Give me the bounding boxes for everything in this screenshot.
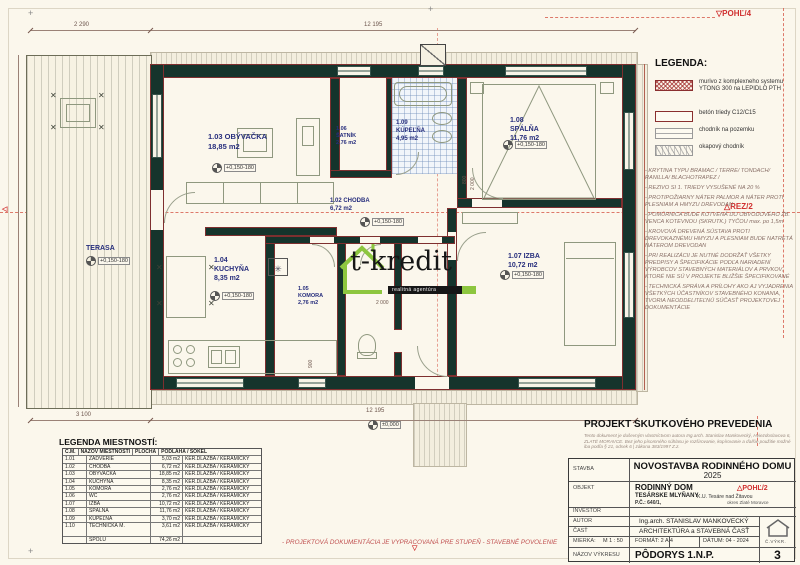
pohl4-axis [545, 17, 715, 18]
tb-nazov-label: NÁZOV VÝKRESU [573, 552, 620, 558]
total-value: 74,26 m2 [151, 537, 183, 543]
tb-cast: ARCHITEKTÚRA a STAVEBNÁ ČASŤ [639, 528, 749, 535]
note-item: - PROTIPOŽIARNY NÁTER PALMOR A NÁTER PRO… [645, 195, 795, 209]
table-row: 1.03 OBÝVAČKA 18,85 m2 KER.DLAŽBA / KERA… [63, 471, 261, 478]
room-table-body: 1.01 ZÁDVERIE 5,03 m2 KER.DLAŽBA / KERAM… [63, 456, 261, 529]
hob-burner [186, 345, 195, 354]
cell-plocha: 5,03 m2 [151, 456, 183, 462]
wall-partition [394, 352, 402, 376]
elevation-mark: +0,150-180 [212, 163, 256, 173]
tv-cabinet-inner [302, 126, 314, 146]
cell-plocha: 8,35 m2 [151, 479, 183, 485]
tb-mierka-label: MIERKA: [573, 538, 596, 544]
sofa-divider [260, 182, 261, 204]
level-icon [360, 217, 370, 227]
note-item: - POMÚRNICA BUDE KOTVENÁ DO OBVODOVÉHO Ž… [645, 212, 795, 226]
tb-loc3: P.Č.: 640/1, [635, 500, 661, 506]
dim-line-left [18, 55, 19, 407]
bathtub-inner [399, 86, 447, 102]
legend-item-label: betón triedy C12/C15 [699, 110, 795, 117]
elevation-mark: +0,150-180 [210, 291, 254, 301]
tb-line [569, 516, 796, 517]
note-item: - REZIVO SI 1. TRIEDY VYSUŠENÉ NA 20 % [645, 185, 795, 192]
table-row: 1.08 SPÁLŇA 11,76 m2 KER.DLAŽBA / KERAMI… [63, 508, 261, 515]
cell-cm: 1.04 [63, 479, 87, 485]
table-row: 1.02 CHODBA 6,72 m2 KER.DLAŽBA / KERAMIC… [63, 464, 261, 471]
level-icon [368, 420, 378, 430]
header-cell: Č.M. [63, 449, 79, 455]
level-icon [210, 291, 220, 301]
tb-stavba-label: STAVBA [573, 466, 594, 472]
cell-podlaha: KER.DLAŽBA / KERAMICKÝ [183, 501, 261, 507]
entry-door-opening [415, 377, 449, 389]
dim-value: 12 195 [366, 408, 384, 414]
table-row: 1.09 KÚPEĽŇA 3,70 m2 KER.DLAŽBA / KERAMI… [63, 516, 261, 523]
registration-cross-icon: + [28, 8, 33, 18]
legend-item: murivo z komplexneho systemu YTONG 300 n… [655, 79, 797, 105]
window [152, 94, 162, 158]
room-label-kuchyna: 1.04KUCHYŇA8,35 m2 [214, 256, 249, 283]
logo-tagline: realitná agentúra [392, 287, 436, 293]
header-cell: PODLAHA / SOKEL [159, 449, 209, 455]
hob-burner [173, 358, 182, 367]
cell-cm: 1.06 [63, 493, 87, 499]
tb-number: 3 [759, 548, 796, 562]
dim-value: 900 [308, 360, 314, 368]
dim-value: 2 000 [470, 177, 476, 190]
registration-cross-icon: + [428, 4, 433, 14]
elevation-mark-terasa: +0,150-180 [86, 256, 130, 266]
dim-value: 800 [462, 176, 468, 184]
hob-burner [173, 345, 182, 354]
cell-plocha: 2,76 m2 [151, 493, 183, 499]
cell-nazov: SPÁLŇA [87, 508, 151, 514]
dim-line-top [30, 30, 636, 31]
tb-line [699, 536, 700, 547]
tb-cast-label: ČASŤ [573, 528, 588, 534]
dim-value: 3 100 [76, 412, 91, 418]
logo-tagline-bar: realitná agentúra [388, 286, 462, 294]
legend-swatch [655, 128, 693, 139]
pohl4-section-mark: ▽POHĽ/4 [716, 9, 751, 18]
cell-nazov: ZÁDVERIE [87, 456, 151, 462]
elevation-mark: +0,150-180 [360, 217, 404, 227]
window [505, 66, 587, 76]
flue-box: ✳ [268, 258, 288, 276]
room-label-satnik: 1.06ŠATNÍK2,76 m2 [336, 126, 356, 147]
wall-partition [457, 78, 467, 206]
tb-line [569, 526, 759, 527]
cell-plocha: 18,85 m2 [151, 471, 183, 477]
chair-icon: ✕ [50, 92, 57, 100]
flue-star-icon: ✳ [274, 264, 282, 274]
room-label-izba: 1.07 IZBA10,72 m2 [508, 252, 540, 270]
hob-burner [186, 358, 195, 367]
window [176, 378, 244, 388]
cell-podlaha: KER.DLAŽBA / KERAMICKÝ [183, 471, 261, 477]
registration-cross-icon: + [28, 546, 33, 556]
level-icon [500, 270, 510, 280]
table-row: 1.06 WC 2,76 m2 KER.DLAŽBA / KERAMICKÝ [63, 493, 261, 500]
tb-mierka: M 1 : 50 [603, 538, 623, 544]
note-item: - TECHNICKÁ SPRÁVA A PRÍLOHY AKO AJ VYJA… [645, 284, 795, 312]
cell-plocha: 10,72 m2 [151, 501, 183, 507]
wall-partition [386, 78, 392, 174]
cell-podlaha: KER.DLAŽBA / KERAMICKÝ [183, 486, 261, 492]
tb-format: FORMÁT: 2 A 4 [635, 538, 673, 544]
cell-plocha: 6,72 m2 [151, 464, 183, 470]
washbasin [432, 112, 452, 125]
tb-loc1: TESÁRSKE MLYŇANY [635, 493, 698, 499]
section-left-icon: ◁ [2, 205, 7, 213]
tkredit-logo: t-kredit realitná agentúra [336, 238, 476, 302]
tb-line [569, 507, 796, 508]
tb-cvykr-label: Č.VÝKR. [765, 539, 786, 544]
tb-house-icon [765, 518, 791, 538]
legend-swatch [655, 80, 693, 91]
cell-nazov: IZBA [87, 501, 151, 507]
cell-podlaha: KER.DLAŽBA / KERAMICKÝ [183, 479, 261, 485]
cell-cm: 1.08 [63, 508, 87, 514]
cell-podlaha: KER.DLAŽBA / KERAMICKÝ [183, 456, 261, 462]
washbasin [432, 130, 452, 143]
cell-cm: 1.03 [63, 471, 87, 477]
table-row: 1.04 KUCHYŇA 8,35 m2 KER.DLAŽBA / KERAMI… [63, 479, 261, 486]
titleblock-copyright: Tento dokument je duševným vlastníctvom … [584, 433, 792, 450]
legend-items: murivo z komplexneho systemu YTONG 300 n… [655, 79, 797, 156]
zero-level-mark: ±0,000 [368, 420, 401, 430]
footer-note: - PROJEKTOVÁ DOKUMENTÁCIA JE VYPRACOVANÁ… [282, 539, 557, 546]
chair-icon: ✕ [156, 264, 163, 272]
cell-cm: 1.02 [63, 464, 87, 470]
tb-autor-label: AUTOR [573, 518, 592, 524]
legend-item-label: chodník na pozemku [699, 127, 795, 134]
tb-objekt: RODINNÝ DOM [635, 483, 693, 492]
cell-podlaha: KER.DLAŽBA / KERAMICKÝ [183, 464, 261, 470]
dim-value: 2 290 [74, 22, 89, 28]
cell-nazov: WC [87, 493, 151, 499]
cell-plocha: 11,76 m2 [151, 508, 183, 514]
window [624, 252, 634, 318]
table-row: 1.01 ZÁDVERIE 5,03 m2 KER.DLAŽBA / KERAM… [63, 456, 261, 463]
cell-cm: 1.09 [63, 516, 87, 522]
elevation-mark: +0,150-180 [503, 140, 547, 150]
level-icon [212, 163, 222, 173]
elevation-mark: +0,150-180 [500, 270, 544, 280]
tb-line [569, 481, 796, 482]
room-label-chodba: 1.02 CHODBA6,72 m2 [330, 198, 370, 214]
legend-swatch [655, 145, 693, 156]
entry-path [413, 403, 467, 467]
tb-pohl2-mark: △POHĽ/2 [737, 484, 768, 492]
room-table-title: LEGENDA MIESTNOSTÍ: [59, 437, 157, 448]
legend-title: LEGENDA: [655, 58, 797, 69]
sink-bowl [225, 350, 236, 364]
tb-line [569, 536, 759, 537]
titleblock: STAVBA NOVOSTAVBA RODINNÉHO DOMU 2025 OB… [568, 458, 795, 562]
wall-partition [330, 170, 392, 178]
window [624, 112, 634, 170]
window [518, 378, 596, 388]
dim-line-bottom [30, 420, 636, 421]
chair-icon: ✕ [98, 92, 105, 100]
room-label-terasa: TERASA [86, 244, 115, 253]
tb-investor-label: INVESTOR [573, 508, 601, 514]
note-item: - PRI REALIZÁCII JE NUTNÉ DODRŽAŤ VŠETKY… [645, 253, 795, 281]
sofa-divider [223, 182, 224, 204]
chair-icon: ✕ [98, 124, 105, 132]
wall-partition [205, 227, 337, 236]
room-table-header: Č.M.NÁZOV MIESTNOSTIPLOCHAPODLAHA / SOKE… [63, 449, 261, 456]
notes-list: - KRYTINA TYPU BRAMAC / TERRE/ TONDACH/ … [645, 168, 795, 312]
legend-item-label: murivo z komplexneho systemu YTONG 300 n… [699, 79, 795, 105]
drawing-sheet: + + + ▽POHĽ/4 △REZ/2 ◁ ▽ ✕ ✕ ✕ ✕ TERASA … [0, 0, 800, 565]
window [298, 378, 326, 388]
tb-loc4: okres Zlaté Moravce [727, 500, 769, 505]
level-icon [503, 140, 513, 150]
legend-swatch [655, 111, 693, 122]
wardrobe [462, 212, 518, 224]
cell-nazov: KUCHYŇA [87, 479, 151, 485]
chair-icon: ✕ [208, 300, 215, 308]
door-opening [310, 237, 334, 243]
cell-nazov: CHODBA [87, 464, 151, 470]
cell-plocha: 3,70 m2 [151, 516, 183, 522]
table-total-row: SPOLU 74,26 m2 [63, 537, 261, 543]
note-item: - KRYTINA TYPU BRAMAC / TERRE/ TONDACH/ … [645, 168, 795, 182]
toilet-tank [357, 352, 377, 359]
bed-pillow-line [566, 258, 614, 259]
nightstand [600, 82, 614, 94]
legend-item: okapový chodník [655, 144, 797, 156]
header-cell: PLOCHA [133, 449, 159, 455]
cell-podlaha: KER.DLAŽBA / KERAMICKÝ [183, 516, 261, 522]
logo-wordmark: t-kredit [350, 246, 452, 277]
room-table: Č.M.NÁZOV MIESTNOSTIPLOCHAPODLAHA / SOKE… [62, 448, 262, 544]
tb-nazov: PÔDORYS 1.N.P. [635, 550, 714, 561]
chair-icon: ✕ [156, 300, 163, 308]
titleblock-heading: PROJEKT SKUTKOVÉHO PREVEDENIA [584, 419, 772, 430]
tb-objekt-label: OBJEKT [573, 485, 594, 491]
window [337, 66, 371, 76]
chair-icon: ✕ [50, 124, 57, 132]
terrace-table-inner [66, 104, 90, 122]
tb-year: 2025 [629, 471, 796, 480]
legend-item-label: okapový chodník [699, 144, 795, 151]
cell-nazov: KÚPEĽŇA [87, 516, 151, 522]
legend-item: chodník na pozemku [655, 127, 797, 139]
notes-panel: - KRYTINA TYPU BRAMAC / TERRE/ TONDACH/ … [645, 168, 795, 315]
room-label-komora: 1.05KOMORA2,76 m2 [298, 286, 323, 307]
logo-tagline-green [462, 286, 476, 294]
cell-podlaha: KER.DLAŽBA / KERAMICKÝ [183, 508, 261, 514]
sink-bowl [211, 350, 222, 364]
door-opening [472, 199, 502, 207]
sofa-divider [297, 182, 298, 204]
cell-podlaha: KER.DLAŽBA / KERAMICKÝ [183, 493, 261, 499]
window [418, 66, 444, 76]
tb-loc2: K.U. Tesáre nad Žitavou [697, 494, 753, 500]
cell-cm: 1.05 [63, 486, 87, 492]
tb-datum: DÁTUM: 04 - 2024 [703, 538, 749, 544]
table-empty-row [63, 529, 261, 536]
header-cell: NÁZOV MIESTNOSTI [79, 449, 133, 455]
total-label: SPOLU [87, 537, 151, 543]
table-row: 1.07 IZBA 10,72 m2 KER.DLAŽBA / KERAMICK… [63, 501, 261, 508]
cell-nazov: KOMORA [87, 486, 151, 492]
cell-nazov: OBÝVAČKA [87, 471, 151, 477]
level-icon [86, 256, 96, 266]
room-label-kupelna: 1.09KÚPEĽŇA4,95 m2 [396, 120, 425, 143]
legend-item: betón triedy C12/C15 [655, 110, 797, 122]
terrace-door-opening [151, 190, 163, 230]
legend-panel: LEGENDA: murivo z komplexneho systemu YT… [655, 58, 797, 161]
cell-cm: 1.07 [63, 501, 87, 507]
dining-table [166, 256, 206, 318]
walkway-bottom [150, 390, 638, 405]
note-item: - KROVOVÁ DREVENÁ SÚSTAVA PROTI DREVOKAZ… [645, 229, 795, 250]
cell-cm: 1.01 [63, 456, 87, 462]
cell-plocha: 2,76 m2 [151, 486, 183, 492]
dim-value: 12 195 [364, 22, 382, 28]
chimney [420, 44, 446, 66]
tb-autor: Ing.arch. STANISLAV MANKOVECKÝ [639, 518, 749, 525]
table-row: 1.05 KOMORA 2,76 m2 KER.DLAŽBA / KERAMIC… [63, 486, 261, 493]
room-label-obyvacka: 1.03 OBÝVAČKA18,85 m2 [208, 132, 267, 152]
